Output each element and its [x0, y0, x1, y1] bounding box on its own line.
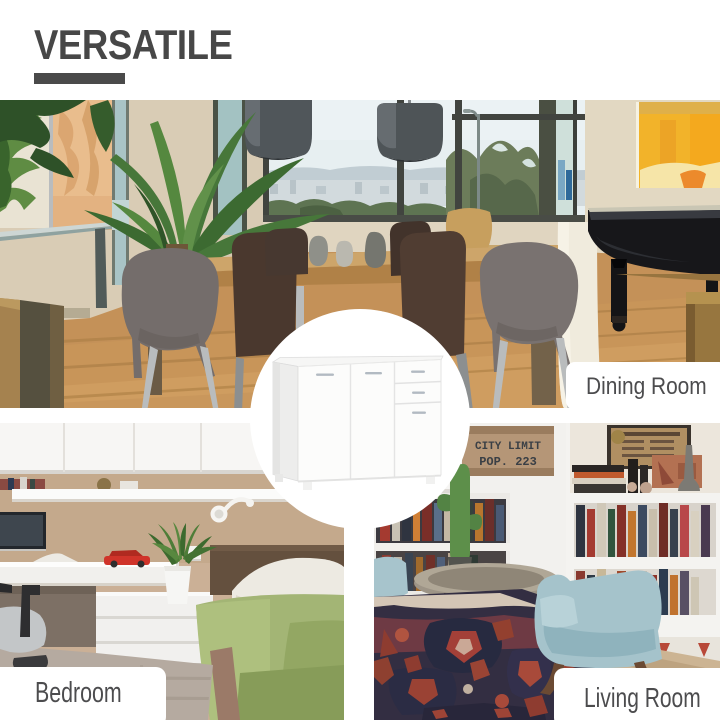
- svg-text:CITY LIMIT: CITY LIMIT: [475, 441, 541, 453]
- svg-text:POP. 223: POP. 223: [479, 455, 537, 469]
